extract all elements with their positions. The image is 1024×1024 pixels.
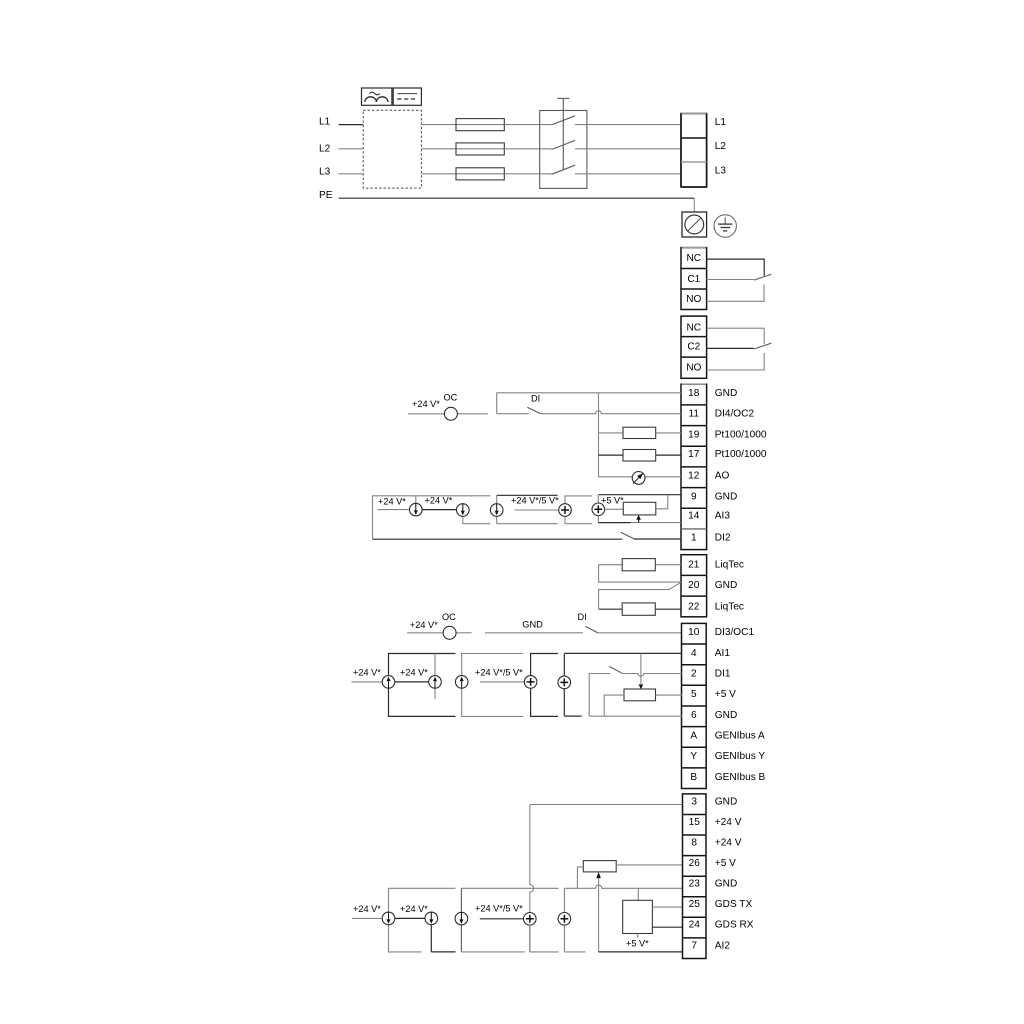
svg-text:3: 3 <box>691 796 697 807</box>
svg-text:GND: GND <box>715 710 737 721</box>
svg-text:GENIbus B: GENIbus B <box>715 772 766 783</box>
svg-text:17: 17 <box>688 449 700 460</box>
svg-text:+24 V*: +24 V* <box>410 620 438 630</box>
svg-text:26: 26 <box>689 858 701 869</box>
svg-text:14: 14 <box>688 510 700 521</box>
svg-text:5: 5 <box>691 689 697 700</box>
svg-text:DI2: DI2 <box>715 533 731 544</box>
svg-text:+24 V*: +24 V* <box>378 496 406 506</box>
svg-text:GND: GND <box>715 879 737 890</box>
svg-text:23: 23 <box>689 879 701 890</box>
svg-text:25: 25 <box>689 899 701 910</box>
svg-text:AI3: AI3 <box>715 510 731 521</box>
svg-text:LiqTec: LiqTec <box>715 601 744 612</box>
svg-text:B: B <box>690 772 697 783</box>
svg-text:L2: L2 <box>319 144 331 155</box>
svg-text:7: 7 <box>691 940 697 951</box>
svg-text:C2: C2 <box>687 342 700 353</box>
svg-text:8: 8 <box>691 837 697 848</box>
svg-text:AI2: AI2 <box>715 940 731 951</box>
svg-text:4: 4 <box>691 648 697 659</box>
svg-text:+24 V: +24 V <box>715 837 742 848</box>
svg-text:GDS TX: GDS TX <box>715 899 753 910</box>
svg-text:+24 V*: +24 V* <box>400 667 428 677</box>
svg-text:9: 9 <box>691 491 697 502</box>
svg-text:15: 15 <box>689 817 701 828</box>
svg-text:+24 V*: +24 V* <box>425 496 453 506</box>
svg-text:+5 V: +5 V <box>715 858 736 869</box>
svg-text:+24 V*: +24 V* <box>353 667 381 677</box>
svg-text:OC: OC <box>444 393 458 403</box>
svg-text:20: 20 <box>688 580 700 591</box>
svg-text:C1: C1 <box>687 274 700 285</box>
svg-text:18: 18 <box>688 388 700 399</box>
svg-text:10: 10 <box>688 627 700 638</box>
svg-text:+24 V*/5 V*: +24 V*/5 V* <box>511 496 559 506</box>
svg-text:6: 6 <box>691 710 697 721</box>
svg-text:L2: L2 <box>715 141 727 152</box>
svg-text:L1: L1 <box>715 117 727 128</box>
svg-text:GENIbus A: GENIbus A <box>715 730 765 741</box>
svg-text:GND: GND <box>715 491 737 502</box>
svg-text:19: 19 <box>688 429 700 440</box>
svg-text:GND: GND <box>715 796 737 807</box>
svg-text:NC: NC <box>687 322 702 333</box>
svg-text:NO: NO <box>686 294 701 305</box>
svg-text:NC: NC <box>687 253 702 264</box>
svg-text:GND: GND <box>715 388 737 399</box>
svg-text:GND: GND <box>522 620 543 630</box>
svg-text:+24 V*: +24 V* <box>353 904 381 914</box>
svg-text:+5 V*: +5 V* <box>601 495 624 505</box>
svg-text:NO: NO <box>686 362 701 373</box>
svg-text:L3: L3 <box>715 165 727 176</box>
svg-text:GDS RX: GDS RX <box>715 920 754 931</box>
svg-text:+24 V*: +24 V* <box>400 904 428 914</box>
svg-text:DI3/OC1: DI3/OC1 <box>715 627 755 638</box>
svg-text:L1: L1 <box>319 117 331 128</box>
svg-text:11: 11 <box>689 409 700 420</box>
svg-text:1: 1 <box>691 533 697 544</box>
svg-text:2: 2 <box>691 669 697 680</box>
svg-text:+5 V: +5 V <box>715 689 736 700</box>
svg-text:DI: DI <box>531 394 540 404</box>
svg-text:Pt100/1000: Pt100/1000 <box>715 449 767 460</box>
svg-text:22: 22 <box>688 601 700 612</box>
svg-text:AO: AO <box>715 471 730 482</box>
svg-text:AI1: AI1 <box>715 648 731 659</box>
svg-text:DI: DI <box>578 612 587 622</box>
svg-text:OC: OC <box>442 612 456 622</box>
svg-text:+24 V*: +24 V* <box>412 399 440 409</box>
svg-text:LiqTec: LiqTec <box>715 559 744 570</box>
svg-text:GENIbus Y: GENIbus Y <box>715 751 766 762</box>
svg-text:24: 24 <box>689 920 701 931</box>
svg-text:A: A <box>690 730 697 741</box>
svg-text:GND: GND <box>715 580 737 591</box>
svg-text:Pt100/1000: Pt100/1000 <box>715 429 767 440</box>
svg-text:L3: L3 <box>319 167 331 178</box>
svg-text:Y: Y <box>690 751 697 762</box>
svg-text:+24 V: +24 V <box>715 817 742 828</box>
svg-text:+5 V*: +5 V* <box>626 939 649 949</box>
svg-text:DI1: DI1 <box>715 669 731 680</box>
svg-text:PE: PE <box>319 190 333 201</box>
svg-text:+24 V*/5 V*: +24 V*/5 V* <box>475 668 523 678</box>
svg-text:+24 V*/5 V*: +24 V*/5 V* <box>475 904 523 914</box>
svg-text:DI4/OC2: DI4/OC2 <box>715 409 755 420</box>
svg-text:12: 12 <box>688 471 700 482</box>
svg-text:21: 21 <box>688 559 700 570</box>
